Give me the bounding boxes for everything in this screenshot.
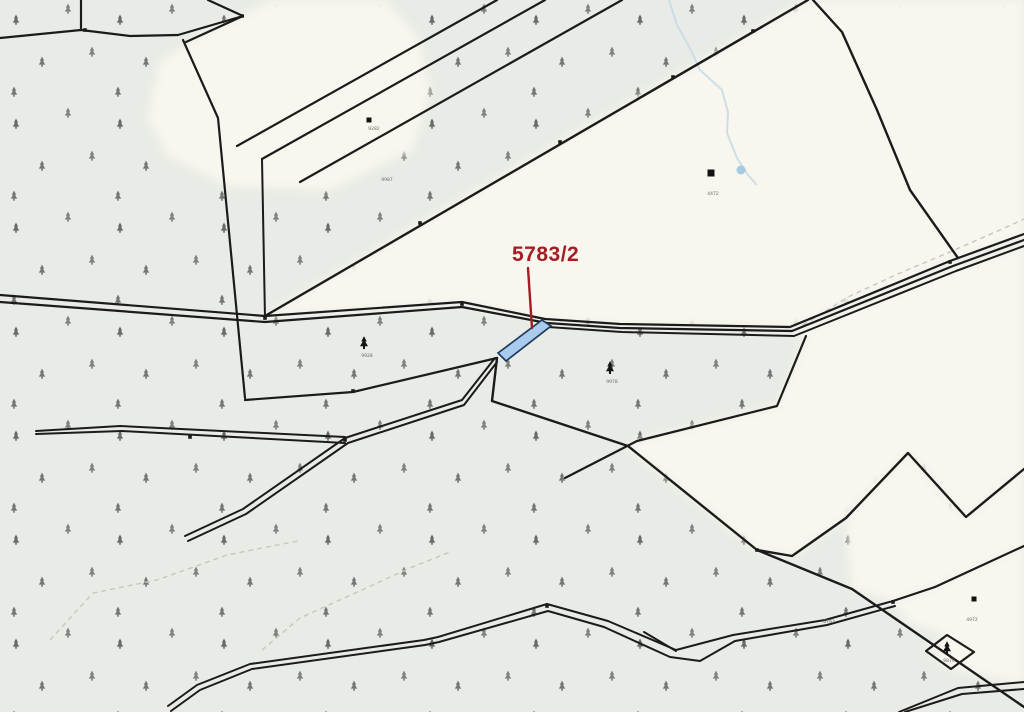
vertex-node [755,548,759,552]
pond [737,166,746,175]
building-symbol [972,597,977,602]
vertex-node [351,389,355,393]
parcel-number-label: 4472 [707,191,719,197]
vertex-node [460,302,464,306]
vertex-node [418,221,422,225]
parcel-number-label: 9987 [381,177,393,183]
parcel-number-label: 9282 [368,126,380,132]
parcel-number-label: 4972 [966,617,978,623]
cadastral-map-canvas[interactable]: 92829987992899784472497298796793 5783/2 [0,0,1024,712]
vertex-node [188,435,192,439]
vertex-node [545,604,549,608]
building-symbol [367,118,372,123]
parcel-number-label: 9928 [361,353,373,359]
cadastral-map-viewport[interactable]: 92829987992899784472497298796793 5783/2 [0,0,1024,712]
vertex-node [948,260,952,264]
parcel-number-label: 9978 [606,379,618,385]
vertex-node [751,29,755,33]
vertex-node [240,14,244,18]
parcel-number-label: 9879 [943,658,955,664]
parcel-number-label: 6793 [823,619,835,625]
vertex-node [558,140,562,144]
parcel-highlight-label: 5783/2 [512,243,579,266]
vertex-node [83,28,87,32]
vertex-node [263,316,267,320]
vertex-node [891,600,895,604]
vertex-node [343,438,347,442]
vertex-node [671,75,675,79]
building-symbol [708,170,715,177]
